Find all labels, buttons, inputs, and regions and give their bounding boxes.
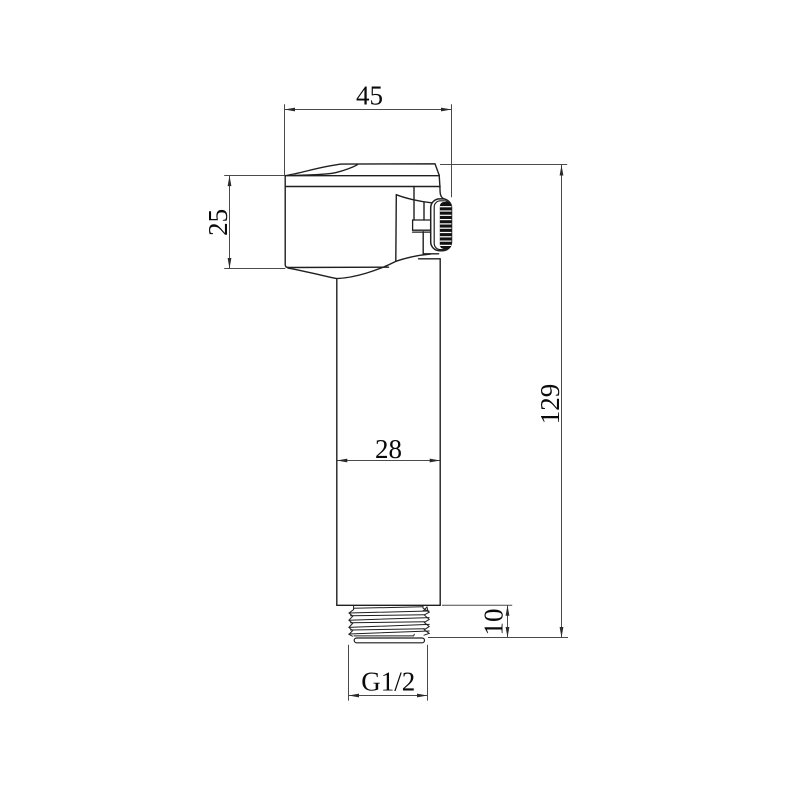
svg-text:10: 10	[478, 609, 508, 636]
svg-text:G1/2: G1/2	[361, 667, 415, 697]
svg-text:28: 28	[375, 434, 402, 464]
svg-text:45: 45	[356, 81, 383, 111]
svg-text:25: 25	[203, 209, 233, 236]
svg-text:129: 129	[535, 384, 565, 425]
